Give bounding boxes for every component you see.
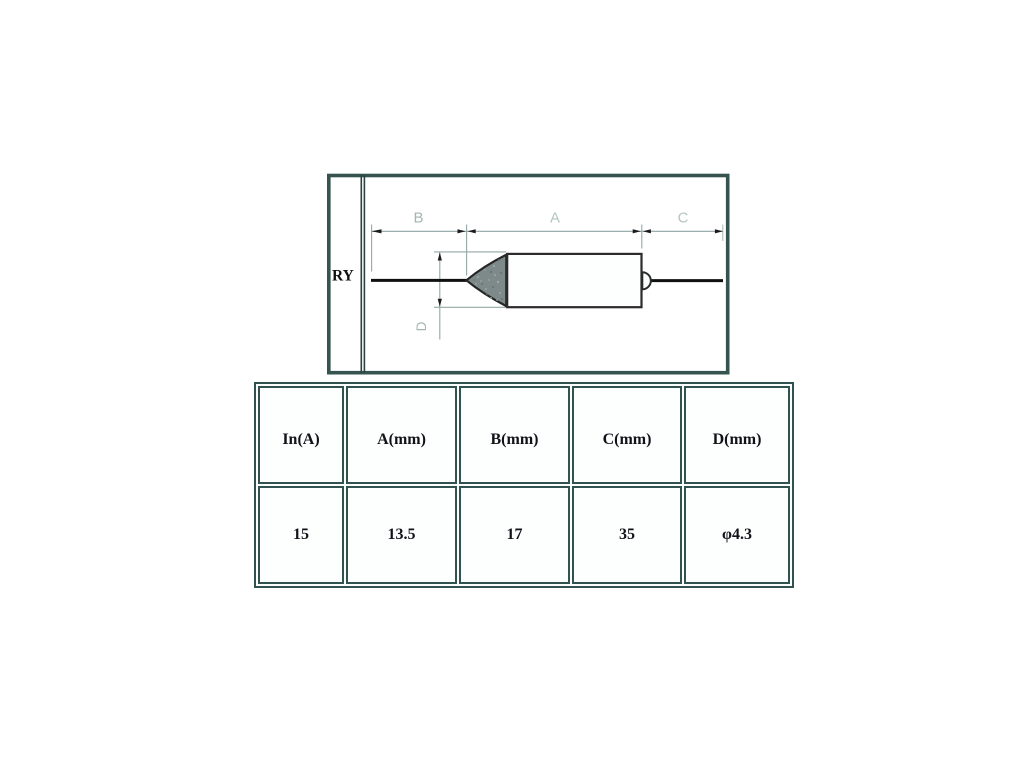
- svg-text:A: A: [550, 210, 560, 227]
- svg-text:B: B: [413, 210, 423, 227]
- svg-text:RY: RY: [332, 268, 354, 285]
- svg-text:D: D: [414, 321, 429, 331]
- svg-text:C: C: [678, 210, 689, 227]
